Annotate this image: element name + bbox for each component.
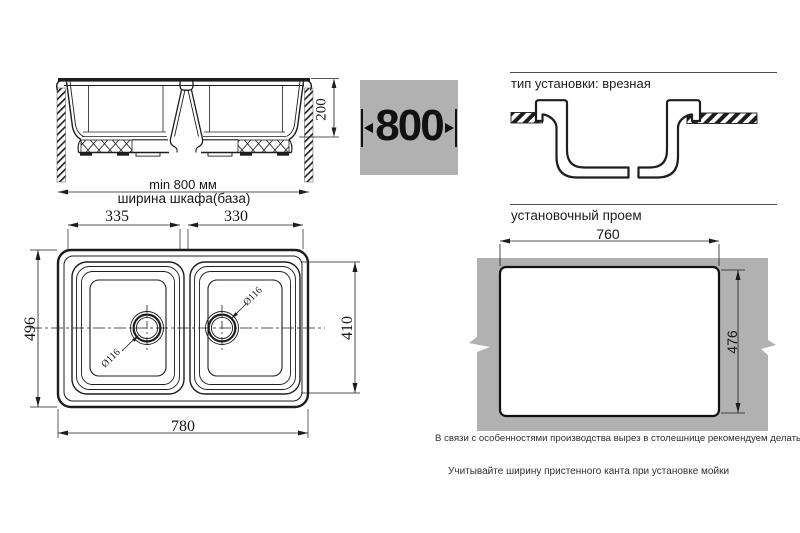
- size-badge-800: 800: [360, 80, 458, 175]
- install-hint-note: Учитывайте ширину пристенного канта при …: [448, 466, 729, 477]
- dim-410-label: 410: [339, 308, 357, 348]
- min-width-label: min 800 мм: [83, 177, 283, 192]
- dim-330-label: 330: [216, 208, 256, 226]
- plan-view-drawing: [20, 205, 370, 450]
- install-type-heading: тип установки: врезная: [511, 76, 651, 91]
- divider-rule-top: [510, 72, 777, 74]
- sink-profile-right: [639, 100, 701, 177]
- sink-installation-drawing: 800 тип установки: врезная установочный …: [0, 0, 800, 533]
- production-note: В связи с особенностями производства выр…: [435, 433, 800, 444]
- sink-profile-left: [536, 100, 629, 177]
- dim-760-label: 760: [583, 226, 633, 242]
- dim-200-label: 200: [314, 94, 331, 126]
- dim-bar-right: [455, 109, 457, 147]
- size-badge-value: 800: [375, 101, 442, 151]
- dim-bar-left: [361, 109, 363, 147]
- dim-780-label: 780: [163, 418, 203, 436]
- dim-335-label: 335: [97, 208, 137, 226]
- divider-rule-middle: [510, 204, 777, 206]
- dim-476-label: 476: [724, 321, 740, 363]
- cabinet-wall-right: [305, 88, 314, 182]
- right-bowl-section: [201, 82, 304, 157]
- dimension-335-330-lines: [68, 223, 303, 253]
- arrow-left-icon: [364, 123, 373, 133]
- cutout-rect: [500, 267, 719, 416]
- opening-view-drawing: [460, 232, 790, 434]
- sink-rim: [57, 78, 312, 91]
- cross-section-drawing: [505, 92, 770, 190]
- bowl-divider: [170, 79, 202, 153]
- cabinet-width-label: ширина шкафа(база): [84, 191, 284, 206]
- arrow-right-icon: [445, 123, 454, 133]
- cabinet-wall-left: [57, 88, 66, 182]
- left-bowl-section: [67, 82, 170, 157]
- dim-496-label: 496: [22, 309, 40, 349]
- opening-heading: установочный проем: [511, 208, 642, 223]
